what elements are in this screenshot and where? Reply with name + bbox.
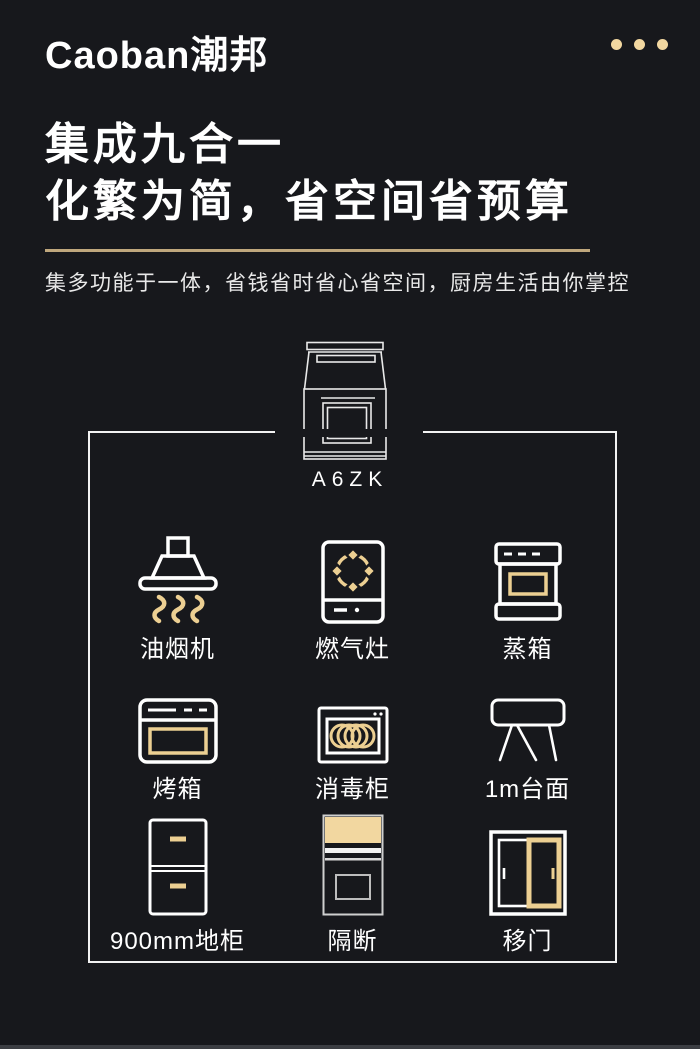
gold-divider [45,249,590,252]
feature-label: 消毒柜 [315,775,390,805]
oven-icon [138,698,218,764]
floor-cabinet-icon [148,818,208,916]
feature-label: 油烟机 [140,635,215,665]
feature-steam-oven: 蒸箱 [440,515,615,665]
feature-label: 烤箱 [153,775,203,805]
feature-disinfection-cabinet: 消毒柜 [265,665,440,805]
feature-oven: 烤箱 [90,665,265,805]
page-subtitle: 集多功能于一体，省钱省时省心省空间，厨房生活由你掌控 [45,267,630,297]
feature-countertop-1m: 1m台面 [440,665,615,805]
bottom-edge-line [0,1045,700,1049]
feature-partition: 隔断 [265,805,440,957]
feature-range-hood: 油烟机 [90,515,265,665]
dot-icon [634,39,645,50]
feature-gas-stove: 燃气灶 [265,515,440,665]
dot-icon [657,39,668,50]
partition-icon [322,814,384,916]
promo-page: Caoban潮邦 集成九合一 化繁为简，省空间省预算 集多功能于一体，省钱省时省… [0,0,700,1049]
title-line-2: 化繁为简，省空间省预算 [45,173,573,230]
brand-logo: Caoban潮邦 [45,24,268,79]
feature-sliding-door: 移门 [440,805,615,957]
menu-dots-icon[interactable] [611,39,668,50]
features-panel: 油烟机 [88,431,617,963]
countertop-icon [490,696,566,764]
gas-stove-icon [321,540,385,624]
page-title: 集成九合一 化繁为简，省空间省预算 [45,116,573,230]
feature-label: 1m台面 [485,775,570,805]
title-line-1: 集成九合一 [45,116,573,173]
feature-label: 燃气灶 [315,635,390,665]
range-hood-icon [136,536,220,624]
dot-icon [611,39,622,50]
feature-label: 蒸箱 [503,635,553,665]
feature-label: 移门 [503,927,553,957]
disinfection-cabinet-icon [317,706,389,764]
features-grid: 油烟机 [90,433,615,961]
steam-oven-icon [492,542,564,624]
feature-label: 900mm地柜 [110,927,245,957]
feature-floor-cabinet-900mm: 900mm地柜 [90,805,265,957]
feature-label: 隔断 [328,927,378,957]
sliding-door-icon [489,830,567,916]
